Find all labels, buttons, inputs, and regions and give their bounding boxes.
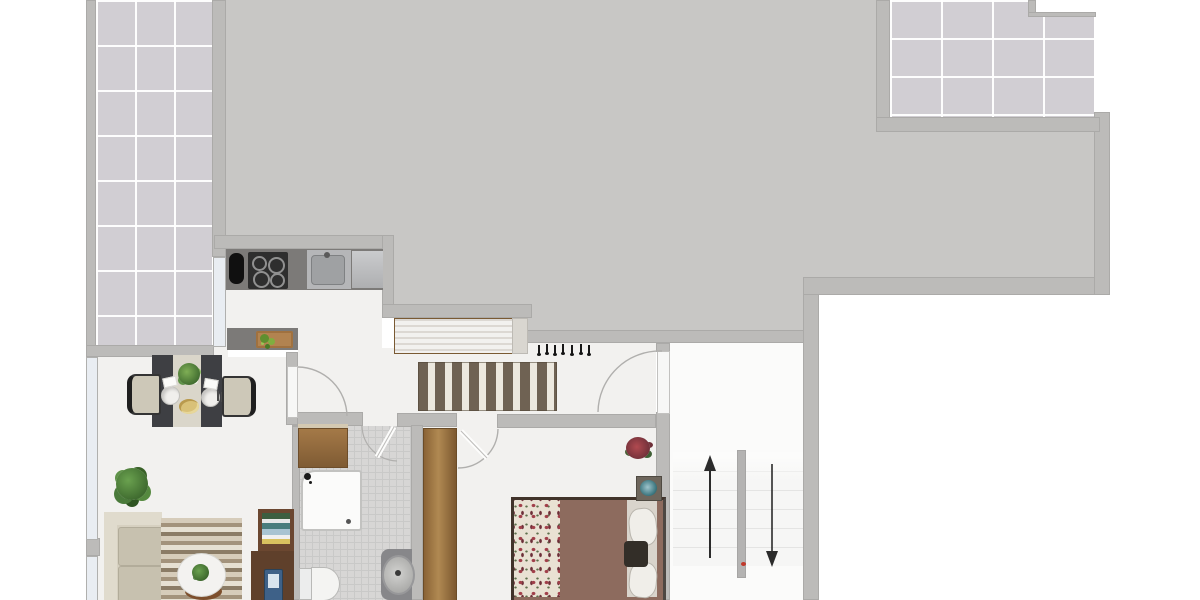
hall-south-wall xyxy=(497,414,656,428)
burner xyxy=(253,271,270,288)
dining-chair-left xyxy=(127,374,161,415)
stairs-fade xyxy=(746,452,803,482)
roof-terrace-area xyxy=(803,235,1094,277)
basin-faucet xyxy=(395,570,401,576)
sofa-armrest xyxy=(104,512,162,525)
shower-drain xyxy=(346,519,351,524)
roof-south-wall xyxy=(803,277,1110,295)
sink-bowl xyxy=(311,255,345,285)
hall-sideboard-side xyxy=(512,318,528,354)
coat-hook xyxy=(580,344,582,353)
desk xyxy=(251,551,294,600)
burner xyxy=(270,273,285,288)
fruit-bowl xyxy=(179,399,199,414)
toilet-bowl xyxy=(311,567,340,600)
hall-runner-rug xyxy=(418,362,557,411)
coat-hook xyxy=(554,345,556,354)
potted-plant xyxy=(116,468,148,500)
plate-left xyxy=(161,386,180,405)
sofa-back xyxy=(104,512,117,600)
floral-bed-runner xyxy=(514,500,560,597)
floor-plan-canvas xyxy=(0,0,1200,600)
faucet xyxy=(324,252,330,258)
dining-window-upper xyxy=(86,357,98,540)
terrace-south-wall xyxy=(876,117,1100,132)
bedroom-door-opening xyxy=(457,415,497,428)
kitchen-north-wall xyxy=(214,235,394,249)
dining-chair-right xyxy=(222,376,256,417)
bookshelf xyxy=(258,509,294,552)
pillow-zone xyxy=(627,500,657,597)
balcony-west-wall xyxy=(86,0,96,357)
centerpiece-plant xyxy=(178,363,200,385)
double-bed xyxy=(511,497,666,600)
dining-window-lower xyxy=(86,556,98,600)
front-door-leaf xyxy=(657,351,670,414)
shower-head xyxy=(304,473,311,480)
books xyxy=(262,513,290,549)
coat-hook xyxy=(562,344,564,353)
sofa-cushion xyxy=(118,566,163,600)
coat-hook xyxy=(538,345,540,354)
roof-east-wall xyxy=(1094,112,1110,295)
stairwell-east-wall xyxy=(803,277,819,600)
coat-hook xyxy=(571,345,573,354)
bed-tray xyxy=(624,541,648,567)
terrace-notch-wall xyxy=(1028,12,1096,17)
bath-cabinet xyxy=(298,424,348,468)
hall-south-wall xyxy=(397,413,457,427)
hall-alcove-north-wall xyxy=(382,304,532,318)
balcony-tiled-floor xyxy=(96,0,212,345)
kitchen-window xyxy=(213,257,226,347)
sofa xyxy=(104,512,162,600)
roof-terrace-area xyxy=(226,0,876,235)
burner xyxy=(268,257,285,274)
burner xyxy=(252,256,267,271)
sofa-cushion xyxy=(118,527,163,566)
dining-door-leaf xyxy=(287,366,298,418)
roof-terrace-area xyxy=(382,235,656,304)
laptop xyxy=(264,569,283,600)
coffee-table-plant xyxy=(192,564,209,581)
terrace-west-wall xyxy=(876,0,890,131)
bedside-teal-bowl xyxy=(640,480,657,496)
washbasin xyxy=(382,555,415,595)
stove xyxy=(248,252,288,289)
refrigerator xyxy=(229,253,244,284)
shower xyxy=(301,470,362,531)
terrace-notch xyxy=(1036,0,1094,12)
laptop-screen xyxy=(268,574,279,588)
bathroom-door-opening xyxy=(363,412,397,426)
stairs-red-mark xyxy=(741,562,746,566)
vegetables xyxy=(260,334,269,343)
cutlery xyxy=(217,391,219,401)
balcony-east-wall xyxy=(212,0,226,257)
west-wall-pier xyxy=(86,538,100,556)
sink-unit xyxy=(307,250,351,289)
steel-counter xyxy=(352,251,383,288)
roof-terrace-area xyxy=(876,132,1094,235)
bedroom-flower-plant xyxy=(626,437,650,459)
coat-hook xyxy=(546,344,548,353)
stairs-divider-wall xyxy=(737,450,746,578)
stairs-fade xyxy=(673,452,737,482)
wardrobe xyxy=(423,428,457,600)
bedside-bowl-frame xyxy=(636,476,662,501)
coat-hook xyxy=(588,345,590,354)
roof-terrace-area xyxy=(527,304,656,330)
upper-terrace-tiled-floor xyxy=(890,0,1094,117)
hall-north-wall xyxy=(527,330,806,343)
roof-terrace-area xyxy=(656,235,803,330)
hall-sideboard xyxy=(394,318,514,354)
